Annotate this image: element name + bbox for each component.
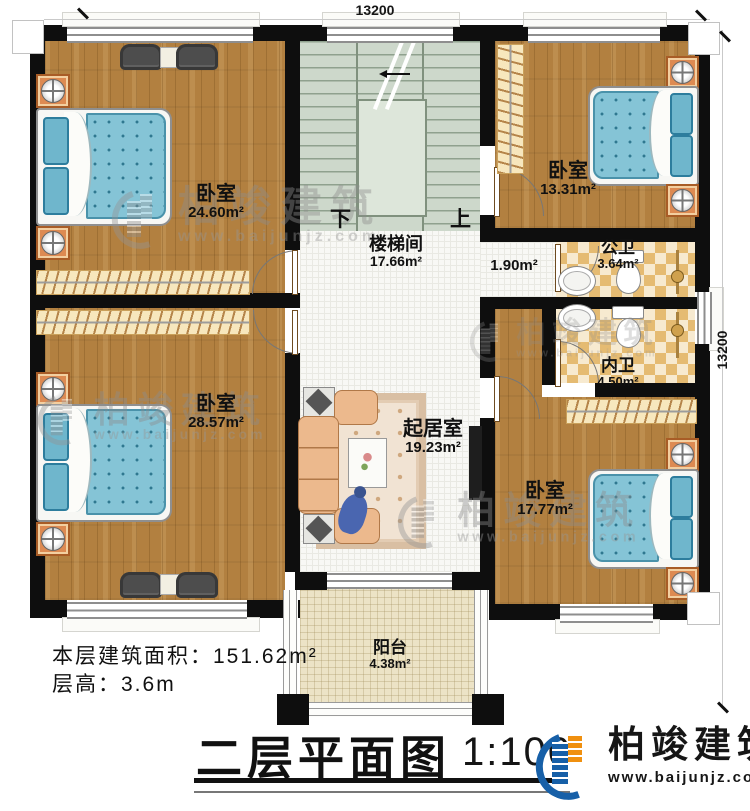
balcony-pillar bbox=[472, 694, 504, 725]
room-name: 卧室 bbox=[523, 160, 613, 182]
wardrobe bbox=[497, 44, 524, 174]
bed-mattress bbox=[86, 409, 166, 515]
stair-up-label: 上 bbox=[450, 203, 471, 233]
window-sill bbox=[62, 617, 260, 632]
bed bbox=[36, 404, 172, 522]
balcony-railing bbox=[283, 702, 489, 717]
hall-area-label: 1.90m² bbox=[482, 258, 546, 275]
nightstand bbox=[666, 438, 699, 471]
door-leaf bbox=[292, 250, 298, 295]
door-leaf bbox=[555, 339, 561, 387]
toilet bbox=[616, 318, 641, 348]
wall-segment bbox=[295, 572, 327, 590]
wardrobe bbox=[566, 399, 697, 424]
window bbox=[697, 292, 712, 344]
floor-area-label: 本层建筑面积： bbox=[52, 645, 213, 668]
chair bbox=[120, 44, 162, 70]
bed-pillow bbox=[670, 93, 693, 135]
balcony-railing bbox=[474, 590, 489, 708]
wall-segment bbox=[452, 572, 484, 590]
floor-area-line: 本层建筑面积：151.62m² bbox=[52, 640, 318, 670]
bed bbox=[588, 469, 699, 569]
chair bbox=[176, 572, 218, 598]
floor-height-label: 层高： bbox=[52, 673, 121, 696]
rail-knob-icon bbox=[671, 270, 684, 283]
wall-segment bbox=[30, 293, 300, 308]
room-label-bedroom-tl: 卧室 24.60m² bbox=[171, 183, 261, 222]
chair bbox=[176, 44, 218, 70]
dimension-right: 13200 bbox=[714, 310, 730, 390]
room-area: 17.66m² bbox=[346, 254, 446, 270]
window bbox=[67, 27, 253, 43]
window bbox=[528, 27, 660, 43]
room-label-bedroom-bl: 卧室 28.57m² bbox=[171, 393, 261, 432]
room-label-stairwell: 楼梯间 17.66m² bbox=[346, 234, 446, 270]
wall-segment bbox=[480, 297, 710, 309]
room-name: 阳台 bbox=[358, 638, 422, 657]
room-area: 4.50m² bbox=[588, 375, 648, 390]
stair-direction-arrow bbox=[386, 73, 410, 75]
wardrobe bbox=[36, 310, 250, 335]
lamp-icon bbox=[306, 389, 333, 416]
brand-name: 柏竣建筑 bbox=[608, 726, 750, 765]
wall-segment bbox=[30, 600, 67, 618]
nightstand bbox=[666, 184, 699, 217]
brand-logo-icon bbox=[534, 726, 600, 796]
plant-icon bbox=[671, 189, 694, 212]
stair-landing bbox=[357, 99, 427, 217]
wall-segment bbox=[285, 25, 300, 250]
bed-mattress bbox=[86, 113, 166, 219]
floor-height-line: 层高：3.6m bbox=[52, 668, 176, 698]
room-area: 13.31m² bbox=[523, 182, 613, 199]
axis-marker bbox=[12, 20, 44, 54]
rail-knob-icon bbox=[671, 324, 684, 337]
room-name: 卧室 bbox=[171, 393, 261, 415]
bed bbox=[36, 108, 172, 226]
nightstand bbox=[36, 372, 70, 406]
floor-height-value: 3.6m bbox=[121, 673, 176, 696]
bed-pillow bbox=[670, 476, 693, 518]
door-leaf bbox=[494, 167, 500, 217]
lamp-table bbox=[303, 514, 335, 544]
plant-icon bbox=[41, 231, 65, 255]
sink-basin bbox=[563, 309, 591, 327]
dimension-top: 13200 bbox=[330, 2, 420, 18]
axis-marker bbox=[688, 22, 720, 55]
title-underline bbox=[194, 778, 564, 783]
plant-icon bbox=[671, 61, 694, 84]
balcony-sliding-door bbox=[327, 573, 452, 589]
wall-segment bbox=[542, 309, 556, 385]
nightstand bbox=[36, 74, 70, 108]
bed-pillow bbox=[43, 413, 69, 461]
armchair bbox=[334, 390, 378, 425]
floor-plan: 13200 13200 柏竣建筑 www.baijunjz.com 柏竣建筑 w… bbox=[0, 0, 750, 802]
room-area: 19.23m² bbox=[390, 440, 476, 457]
wall-segment bbox=[480, 309, 495, 378]
bed-pillow bbox=[43, 463, 69, 511]
coffee-table bbox=[348, 438, 387, 488]
window bbox=[67, 602, 247, 619]
brand-logo: 柏竣建筑 www.baijunjz.com bbox=[534, 726, 750, 796]
bed-pillow bbox=[43, 167, 69, 215]
dimension-tick bbox=[719, 30, 731, 42]
bed-pillow bbox=[43, 117, 69, 165]
sink-basin bbox=[563, 271, 591, 291]
room-label-bedroom-br: 卧室 17.77m² bbox=[500, 480, 590, 519]
room-name: 楼梯间 bbox=[346, 234, 446, 254]
chair bbox=[120, 572, 162, 598]
room-area: 3.64m² bbox=[588, 257, 648, 272]
wall-segment bbox=[480, 604, 560, 620]
room-area: 4.38m² bbox=[358, 657, 422, 672]
bed-pillow bbox=[670, 135, 693, 177]
lamp-icon bbox=[306, 516, 333, 543]
room-name: 起居室 bbox=[390, 418, 476, 440]
brand-url: www.baijunjz.com bbox=[608, 769, 750, 786]
room-name: 卧室 bbox=[500, 480, 590, 502]
balcony-pillar bbox=[277, 694, 309, 725]
nightstand bbox=[36, 226, 70, 260]
plant-icon bbox=[41, 377, 65, 401]
door-leaf bbox=[292, 310, 298, 355]
wall-segment bbox=[480, 25, 495, 146]
stair-arrow-head-icon bbox=[379, 70, 387, 78]
room-area: 17.77m² bbox=[500, 502, 590, 519]
sink bbox=[558, 304, 596, 332]
window bbox=[327, 27, 453, 43]
room-label-inner-bath: 内卫 4.50m² bbox=[588, 356, 648, 390]
window bbox=[560, 606, 653, 623]
room-area: 1.90m² bbox=[482, 258, 546, 275]
room-label-public-bath: 公卫 3.64m² bbox=[588, 238, 648, 272]
room-name: 内卫 bbox=[588, 356, 648, 375]
floor-area-value: 151.62m² bbox=[213, 645, 318, 668]
nightstand bbox=[36, 522, 70, 556]
wardrobe bbox=[36, 270, 250, 295]
nightstand bbox=[666, 56, 699, 89]
lamp-table bbox=[303, 387, 335, 417]
stair-down-label: 下 bbox=[330, 203, 351, 233]
axis-marker bbox=[687, 592, 720, 625]
room-name: 卧室 bbox=[171, 183, 261, 205]
room-label-living: 起居室 19.23m² bbox=[390, 418, 476, 457]
plant-icon bbox=[41, 79, 65, 103]
dimension-tick bbox=[717, 701, 729, 713]
door-leaf bbox=[494, 376, 500, 422]
sofa bbox=[298, 416, 339, 514]
bed-pillow bbox=[670, 518, 693, 560]
dimension-line bbox=[44, 19, 710, 20]
plant-icon bbox=[671, 443, 694, 466]
room-label-bedroom-tr: 卧室 13.31m² bbox=[523, 160, 613, 199]
title-underline bbox=[194, 791, 570, 793]
room-area: 28.57m² bbox=[171, 415, 261, 432]
plant-icon bbox=[41, 527, 65, 551]
room-label-balcony: 阳台 4.38m² bbox=[358, 638, 422, 672]
room-name: 公卫 bbox=[588, 238, 648, 257]
room-area: 24.60m² bbox=[171, 205, 261, 222]
